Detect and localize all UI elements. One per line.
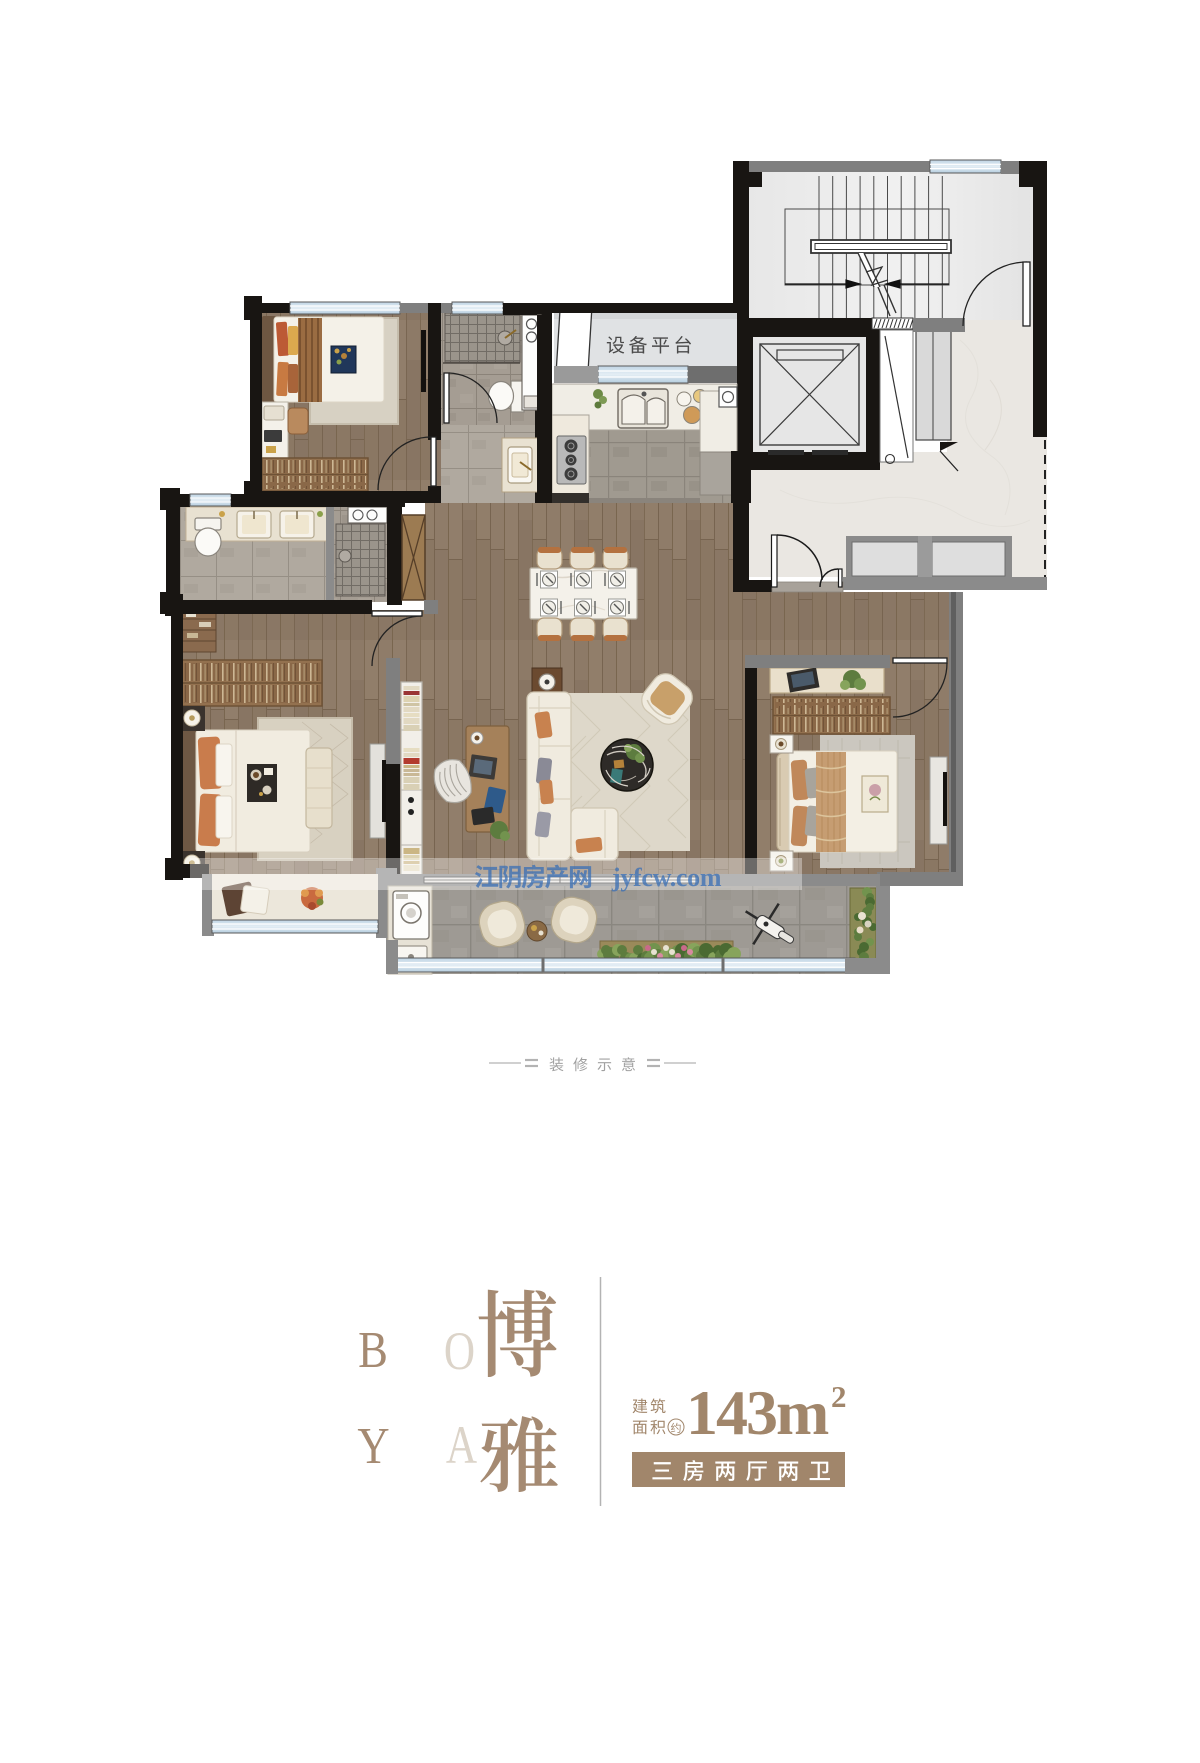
svg-text:Y: Y (357, 1418, 389, 1475)
svg-text:B: B (358, 1322, 388, 1379)
svg-text:143m: 143m (686, 1377, 829, 1448)
svg-text:jyfcw.com: jyfcw.com (611, 863, 722, 892)
svg-text:2: 2 (831, 1379, 847, 1414)
svg-text:O: O (444, 1322, 475, 1382)
svg-text:A: A (446, 1416, 477, 1476)
